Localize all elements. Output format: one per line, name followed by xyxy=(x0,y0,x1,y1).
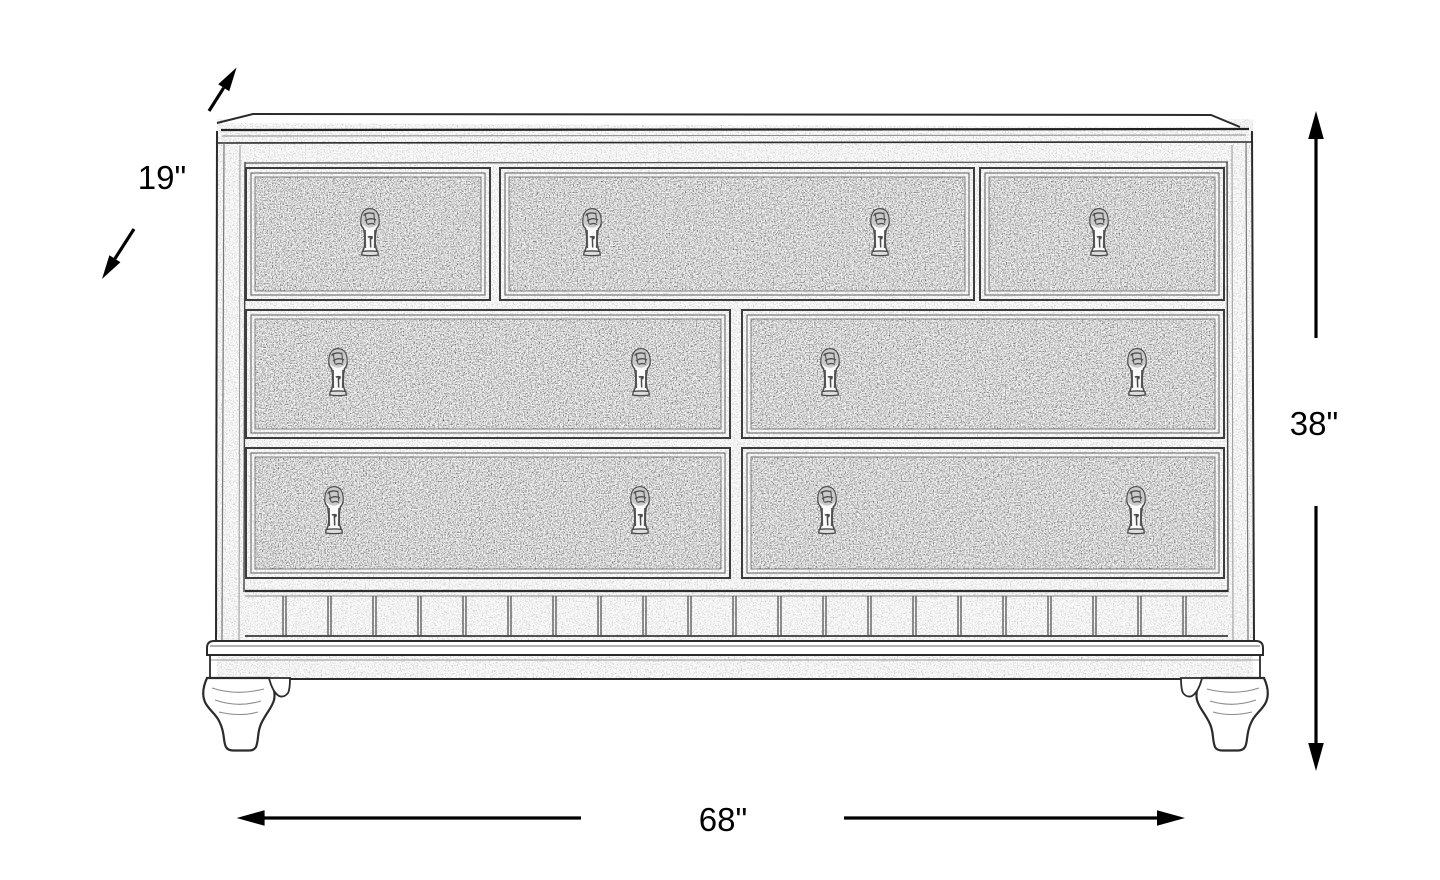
svg-text:38": 38" xyxy=(1290,405,1338,442)
svg-text:68": 68" xyxy=(699,801,747,838)
svg-text:19": 19" xyxy=(138,159,186,196)
